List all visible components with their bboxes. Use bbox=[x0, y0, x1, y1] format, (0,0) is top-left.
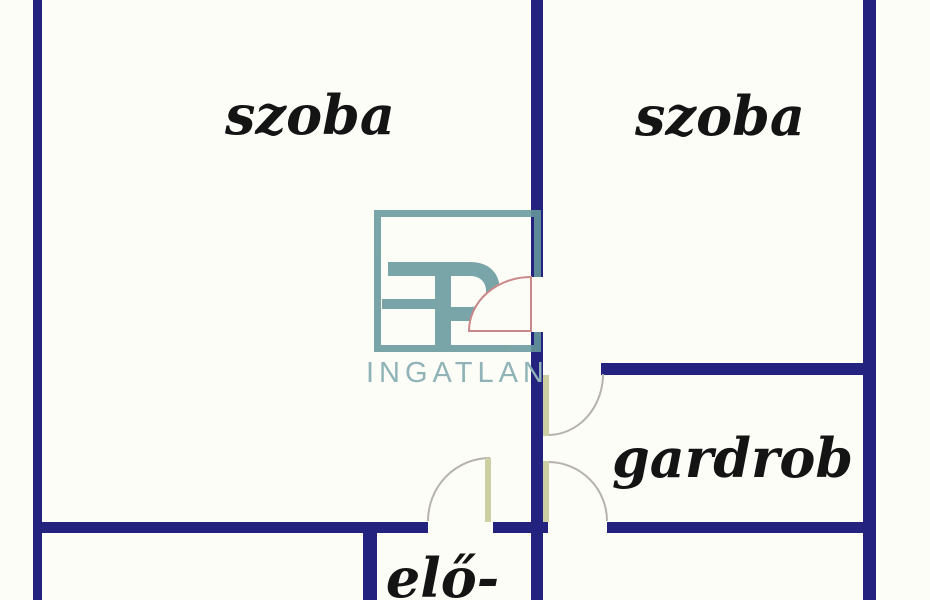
wall-bottom-center bbox=[493, 522, 548, 533]
room-label-left: szoba bbox=[225, 88, 380, 142]
watermark-bar-mid bbox=[382, 299, 437, 309]
watermark-bar-top bbox=[388, 262, 438, 276]
wall-bottom-left bbox=[33, 522, 428, 533]
room-label-hallway: elő- bbox=[385, 551, 500, 600]
door-room-to-room bbox=[469, 277, 544, 332]
door-leaf-hallway-left bbox=[485, 458, 491, 522]
wall-right-outer bbox=[863, 0, 876, 600]
wall-gardrob-top bbox=[601, 363, 863, 375]
door-arc-gardrob-lower bbox=[549, 462, 607, 521]
room-label-gardrob: gardrob bbox=[612, 431, 817, 485]
floor-plan: szoba szoba gardrob elő- INGATLAN bbox=[0, 0, 930, 600]
wall-left-outer bbox=[33, 0, 42, 600]
door-leaf-gardrob-lower bbox=[543, 461, 549, 522]
watermark-brand-text: INGATLAN bbox=[366, 359, 549, 388]
room-label-right: szoba bbox=[635, 89, 790, 143]
door-arc-gardrob-upper bbox=[549, 374, 603, 435]
door-arc-hallway-left bbox=[428, 458, 490, 521]
wall-hallway-left bbox=[363, 533, 377, 600]
wall-bottom-right bbox=[607, 522, 863, 533]
door-fan-room-to-room bbox=[469, 277, 531, 331]
doors bbox=[428, 374, 607, 522]
